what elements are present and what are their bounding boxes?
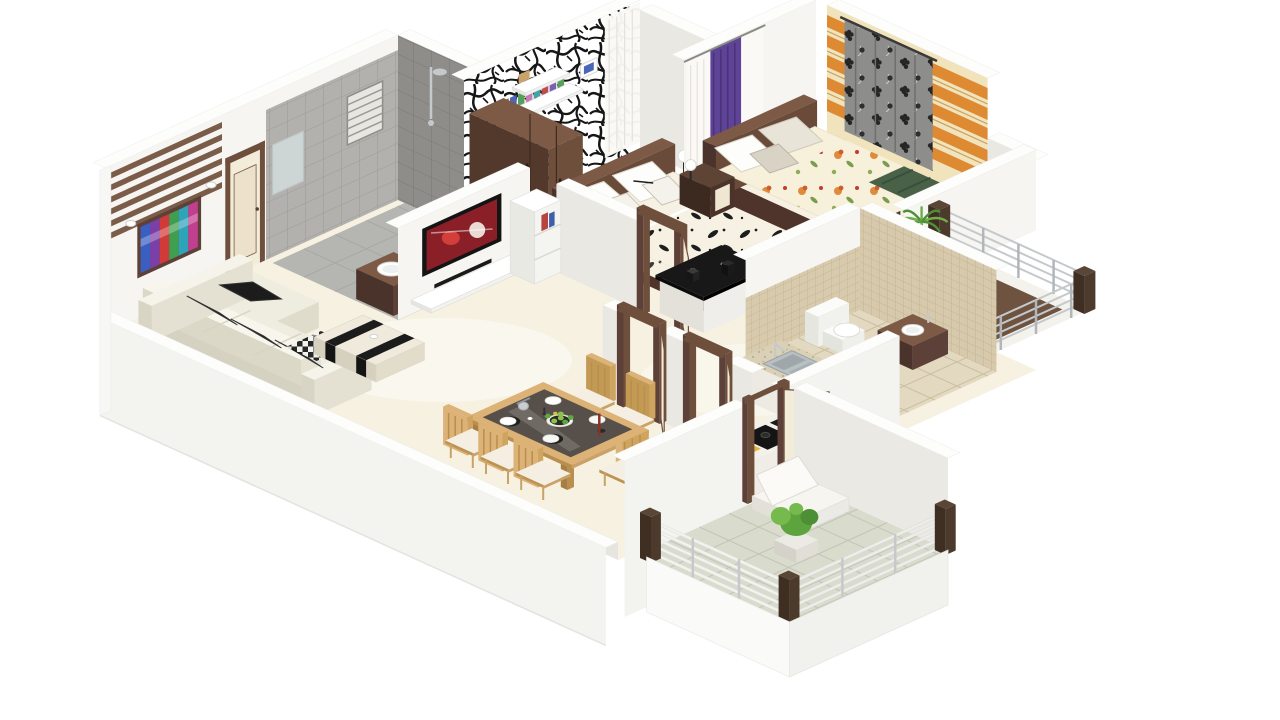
- floor-plan-stage: [0, 0, 1280, 720]
- hall-door-jamb-a-face-sw: [617, 305, 624, 408]
- dinner-plate: [545, 397, 561, 405]
- plant-foliage: [789, 503, 803, 515]
- bath2-toilet-seat: [834, 323, 860, 337]
- art-stripe-1: [150, 218, 160, 268]
- art-stripe-0: [141, 223, 151, 273]
- isometric-floor-plan-render: [0, 0, 1280, 720]
- cup-small: [528, 417, 533, 420]
- bath1-basin-inner: [382, 265, 400, 273]
- chair-ne-back-face-se: [650, 382, 656, 421]
- plant-foliage: [771, 507, 791, 525]
- art-stripe-2: [160, 214, 170, 264]
- rail-post-brown-face-se: [1084, 271, 1095, 314]
- balcony-door-jamb-face-se: [748, 397, 755, 504]
- bath2-basin-inner: [906, 327, 920, 334]
- rail-post-brown-bb-face-sw: [640, 512, 651, 563]
- fruit-yellow: [553, 412, 557, 416]
- art-stripe-3: [169, 210, 179, 260]
- door-jamb-b1-face-se: [643, 208, 650, 315]
- fruit-green: [568, 415, 574, 420]
- balcony-door-jamb-face-sw: [742, 398, 748, 505]
- dinner-plate: [589, 416, 605, 424]
- coffee-deco: [370, 335, 378, 339]
- rail-post-brown-bb-face-sw: [935, 504, 946, 555]
- tv-screen-blob: [442, 231, 460, 245]
- ladder-book: [541, 212, 548, 231]
- fruit-green: [551, 419, 557, 424]
- fruit-green: [562, 420, 568, 425]
- rail-post-brown-bb-face-se: [946, 505, 956, 556]
- rail-post-brown-face-sw: [1073, 271, 1084, 314]
- door-jamb-b1-face-sw: [637, 208, 644, 315]
- sheer-curtain-b1: [605, 2, 640, 158]
- wall-lamp-icon: [206, 182, 216, 188]
- chair-ne-back-face-se: [610, 364, 616, 403]
- rail-post-brown-bb-face-se: [651, 513, 661, 564]
- bath2-toilet-tank-face-sw: [805, 311, 818, 347]
- wall-lamp-icon: [126, 221, 136, 227]
- art-stripe-4: [179, 205, 189, 255]
- shower-head-icon: [433, 69, 447, 76]
- fruit-green: [558, 416, 564, 421]
- door-handle-icon: [255, 207, 259, 211]
- ladder-shelf-face-sw: [510, 201, 534, 284]
- plant-foliage: [800, 509, 818, 525]
- shower-mixer-icon: [428, 120, 434, 126]
- entry-door-inset: [234, 165, 256, 263]
- dinner-plate: [500, 417, 516, 425]
- left-corner-edge: [100, 166, 111, 416]
- door-jamb: [260, 141, 265, 263]
- dinner-plate: [543, 435, 559, 443]
- hob-pot: [761, 432, 770, 437]
- bedside-lamp-b2: [685, 160, 696, 171]
- art-stripe-5: [188, 201, 198, 251]
- ladder-book: [549, 211, 555, 228]
- hall-door-panel: [661, 327, 664, 443]
